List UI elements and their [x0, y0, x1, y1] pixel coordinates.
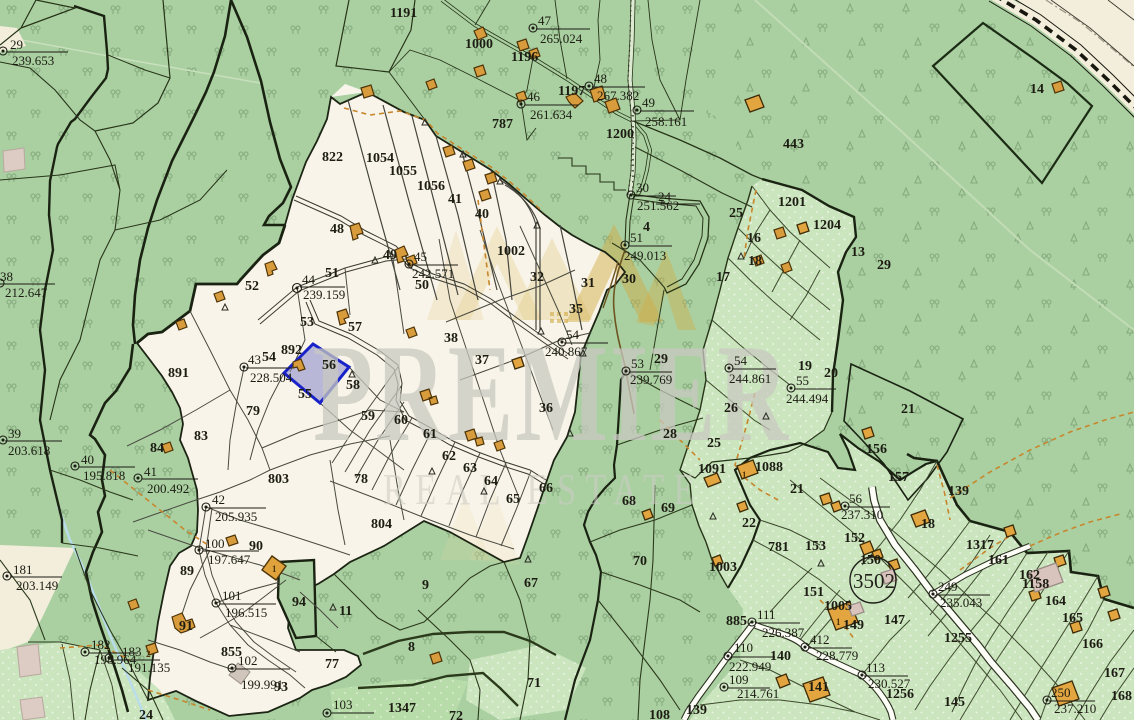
svg-text:13: 13	[851, 245, 865, 260]
svg-text:195.818: 195.818	[83, 468, 125, 483]
svg-text:1002: 1002	[497, 244, 525, 259]
svg-text:36: 36	[539, 401, 553, 416]
svg-text:69: 69	[661, 501, 675, 516]
svg-text:109: 109	[729, 672, 749, 687]
svg-text:49: 49	[642, 95, 655, 110]
svg-text:196.515: 196.515	[225, 605, 267, 620]
svg-text:787: 787	[492, 117, 513, 132]
svg-text:251.562: 251.562	[637, 198, 679, 213]
svg-text:63: 63	[463, 461, 477, 476]
svg-text:1201: 1201	[778, 195, 806, 210]
svg-text:1256: 1256	[886, 687, 914, 702]
svg-text:90: 90	[249, 539, 263, 554]
svg-text:212.647: 212.647	[5, 285, 48, 300]
svg-text:147: 147	[884, 613, 905, 628]
svg-text:161: 161	[988, 553, 1009, 568]
svg-text:29: 29	[877, 258, 891, 273]
svg-text:38: 38	[0, 269, 13, 284]
svg-text:1347: 1347	[388, 701, 416, 716]
svg-text:77: 77	[325, 657, 339, 672]
svg-text:235.043: 235.043	[940, 595, 982, 610]
svg-text:228.504: 228.504	[250, 370, 293, 385]
svg-text:48: 48	[330, 222, 344, 237]
svg-text:1: 1	[272, 564, 277, 574]
svg-text:41: 41	[448, 192, 462, 207]
svg-text:17: 17	[716, 270, 730, 285]
svg-text:56: 56	[849, 491, 863, 506]
svg-text:43: 43	[248, 352, 261, 367]
svg-text:25: 25	[707, 436, 721, 451]
svg-text:18: 18	[921, 517, 935, 532]
svg-text:16: 16	[747, 231, 761, 246]
svg-text:1317: 1317	[966, 538, 994, 553]
svg-text:78: 78	[354, 472, 368, 487]
svg-text:52: 52	[245, 279, 259, 294]
svg-text:1003: 1003	[709, 560, 737, 575]
svg-text:1196: 1196	[511, 50, 538, 65]
svg-text:32: 32	[530, 270, 544, 285]
svg-text:183: 183	[122, 644, 142, 659]
svg-text:239.653: 239.653	[12, 53, 54, 68]
svg-text:54: 54	[734, 353, 748, 368]
svg-text:108: 108	[649, 708, 670, 720]
svg-text:237.210: 237.210	[1054, 701, 1096, 716]
svg-text:53: 53	[300, 315, 314, 330]
svg-text:182: 182	[91, 637, 111, 652]
svg-text:21: 21	[790, 482, 804, 497]
svg-text:44: 44	[302, 272, 316, 287]
svg-text:8: 8	[408, 640, 415, 655]
svg-text:150: 150	[860, 553, 881, 568]
svg-text:91: 91	[179, 619, 193, 634]
svg-text:153: 153	[805, 539, 826, 554]
svg-text:265.024: 265.024	[540, 31, 583, 46]
svg-text:164: 164	[1045, 594, 1066, 609]
svg-text:30: 30	[636, 180, 649, 195]
svg-text:1197: 1197	[558, 84, 585, 99]
svg-text:781: 781	[768, 540, 789, 555]
svg-text:94: 94	[292, 595, 306, 610]
svg-text:191.135: 191.135	[128, 660, 170, 675]
svg-text:21: 21	[901, 402, 915, 417]
svg-text:443: 443	[783, 137, 804, 152]
svg-text:156: 156	[866, 442, 887, 457]
svg-text:79: 79	[246, 404, 260, 419]
svg-text:166: 166	[1082, 637, 1103, 652]
svg-text:1055: 1055	[389, 164, 417, 179]
svg-text:1200: 1200	[606, 127, 634, 142]
svg-text:267.382: 267.382	[597, 88, 639, 103]
svg-text:84: 84	[150, 441, 164, 456]
svg-text:261.634: 261.634	[530, 107, 573, 122]
svg-text:1091: 1091	[698, 462, 726, 477]
svg-text:244.494: 244.494	[786, 391, 829, 406]
svg-text:244.861: 244.861	[729, 371, 771, 386]
svg-text:240.867: 240.867	[545, 344, 588, 359]
svg-text:47: 47	[538, 13, 552, 28]
svg-text:249.013: 249.013	[624, 248, 666, 263]
svg-text:46: 46	[527, 89, 541, 104]
svg-text:39: 39	[8, 426, 21, 441]
svg-text:139: 139	[686, 703, 707, 718]
svg-text:855: 855	[221, 645, 242, 660]
svg-text:892: 892	[281, 343, 302, 358]
svg-text:1: 1	[836, 617, 841, 627]
svg-text:140: 140	[770, 649, 791, 664]
svg-text:24: 24	[139, 708, 153, 720]
svg-text:110: 110	[734, 640, 753, 655]
svg-text:68: 68	[622, 494, 636, 509]
svg-text:51: 51	[325, 266, 339, 281]
svg-text:151: 151	[803, 585, 824, 600]
svg-text:250: 250	[1051, 685, 1071, 700]
svg-text:249: 249	[938, 579, 958, 594]
svg-text:1191: 1191	[390, 6, 417, 21]
svg-text:168: 168	[1111, 689, 1132, 704]
svg-text:214.761: 214.761	[737, 686, 779, 701]
svg-text:57: 57	[348, 320, 362, 335]
svg-text:139: 139	[948, 484, 969, 499]
svg-text:803: 803	[268, 472, 289, 487]
svg-text:61: 61	[423, 427, 437, 442]
svg-text:412: 412	[810, 632, 830, 647]
svg-text:1088: 1088	[755, 460, 783, 475]
svg-text:885: 885	[726, 614, 747, 629]
svg-text:71: 71	[527, 676, 541, 691]
svg-text:60: 60	[394, 413, 408, 428]
svg-text:200.492: 200.492	[147, 481, 189, 496]
svg-text:89: 89	[180, 564, 194, 579]
svg-text:26: 26	[724, 401, 738, 416]
svg-text:822: 822	[322, 150, 343, 165]
svg-text:145: 145	[944, 695, 965, 710]
svg-text:103: 103	[333, 697, 353, 712]
svg-text:49: 49	[383, 248, 397, 263]
svg-text:804: 804	[371, 517, 392, 532]
svg-text:1000: 1000	[465, 37, 493, 52]
svg-text:4: 4	[643, 220, 650, 235]
svg-text:113: 113	[866, 660, 885, 675]
svg-text:41: 41	[144, 464, 157, 479]
svg-text:228.779: 228.779	[816, 648, 858, 663]
svg-text:14: 14	[1030, 82, 1044, 97]
svg-text:62: 62	[442, 449, 456, 464]
svg-text:51: 51	[630, 230, 643, 245]
svg-text:83: 83	[194, 429, 208, 444]
svg-text:22: 22	[742, 516, 756, 531]
svg-text:54: 54	[262, 350, 276, 365]
svg-text:58: 58	[346, 378, 360, 393]
svg-text:55: 55	[298, 387, 312, 402]
svg-text:167: 167	[1104, 666, 1125, 681]
svg-text:28: 28	[663, 427, 677, 442]
svg-text:239.769: 239.769	[630, 372, 672, 387]
svg-text:30: 30	[622, 272, 636, 287]
svg-text:226.387: 226.387	[762, 625, 805, 640]
svg-text:1158: 1158	[1022, 577, 1049, 592]
svg-text:203.149: 203.149	[16, 578, 58, 593]
svg-text:38: 38	[444, 331, 458, 346]
svg-text:64: 64	[484, 474, 498, 489]
svg-text:48: 48	[594, 71, 607, 86]
svg-text:101: 101	[222, 588, 242, 603]
svg-text:35: 35	[569, 302, 583, 317]
svg-text:59: 59	[361, 409, 375, 424]
svg-text:40: 40	[81, 452, 94, 467]
svg-text:18: 18	[748, 254, 762, 269]
svg-text:205.935: 205.935	[215, 509, 257, 524]
svg-text:11: 11	[339, 604, 352, 619]
svg-text:29: 29	[10, 37, 23, 52]
svg-text:54: 54	[566, 327, 580, 342]
svg-text:40: 40	[475, 207, 489, 222]
svg-text:20: 20	[824, 366, 838, 381]
svg-text:50: 50	[415, 278, 429, 293]
svg-text:165: 165	[1062, 611, 1083, 626]
svg-text:149: 149	[843, 618, 864, 633]
svg-text:65: 65	[506, 492, 520, 507]
svg-text:1255: 1255	[944, 631, 972, 646]
svg-text:237.310: 237.310	[841, 507, 883, 522]
svg-text:891: 891	[168, 366, 189, 381]
svg-text:66: 66	[539, 481, 553, 496]
svg-text:72: 72	[449, 709, 463, 720]
svg-text:203.618: 203.618	[8, 443, 50, 458]
svg-text:141: 141	[808, 680, 829, 695]
svg-text:67: 67	[524, 576, 538, 591]
svg-text:25: 25	[729, 206, 743, 221]
svg-text:42: 42	[212, 492, 225, 507]
svg-text:53: 53	[631, 356, 644, 371]
svg-text:55: 55	[796, 373, 809, 388]
svg-text:70: 70	[633, 554, 647, 569]
svg-text:93: 93	[274, 680, 288, 695]
svg-text:56: 56	[322, 358, 336, 373]
svg-text:31: 31	[581, 276, 595, 291]
svg-text:37: 37	[475, 353, 489, 368]
svg-text:111: 111	[757, 607, 776, 622]
svg-text:239.159: 239.159	[303, 287, 345, 302]
svg-text:19: 19	[798, 359, 812, 374]
svg-text:157: 157	[888, 470, 909, 485]
svg-text:197.647: 197.647	[208, 552, 251, 567]
svg-text:152: 152	[844, 531, 865, 546]
svg-text:3502: 3502	[853, 569, 895, 593]
svg-text:181: 181	[13, 562, 33, 577]
svg-text:29: 29	[654, 352, 668, 367]
svg-text:1204: 1204	[813, 218, 841, 233]
svg-text:100: 100	[205, 536, 225, 551]
svg-text:45: 45	[414, 249, 427, 264]
svg-text:9: 9	[422, 578, 429, 593]
svg-text:258.161: 258.161	[645, 114, 687, 129]
svg-text:1056: 1056	[417, 179, 445, 194]
svg-text:1: 1	[742, 470, 747, 480]
svg-text:1005: 1005	[824, 599, 852, 614]
svg-text:2: 2	[146, 649, 151, 659]
